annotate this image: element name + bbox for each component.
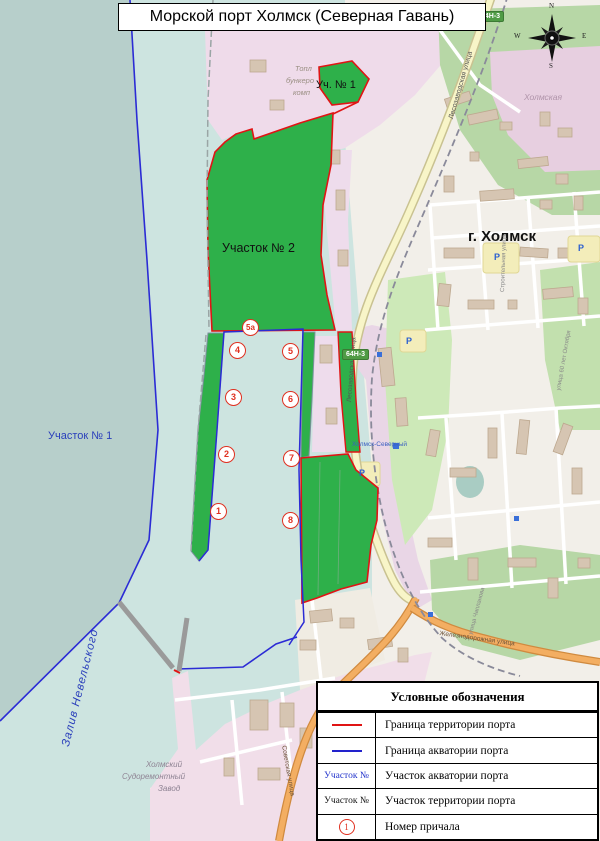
legend-row-text: Участок акватории порта	[376, 764, 597, 788]
legend-row-territory-border: Граница территории порта	[318, 712, 597, 737]
compass-n-label: N	[549, 2, 554, 10]
legend-row-aquatory-border: Граница акватории порта	[318, 737, 597, 762]
legend-row-text: Номер причала	[376, 815, 597, 839]
station-label: Холмск-Северный	[352, 441, 407, 448]
parking-icon: P	[494, 252, 500, 262]
territory-area2-polygon	[207, 113, 335, 331]
fuel-company-label: бункеро	[286, 76, 314, 85]
blue-line-symbol	[332, 750, 362, 752]
red-line-symbol	[332, 724, 362, 726]
parking-icon: P	[406, 336, 412, 346]
territory-area2-label: Участок № 2	[222, 241, 295, 255]
legend-row-text: Участок территории порта	[376, 789, 597, 813]
water-area1-label: Участок № 1	[48, 430, 112, 442]
berth-marker: 8	[282, 512, 299, 529]
territory-area-symbol: Участок №	[324, 796, 369, 806]
shipyard-label: Завод	[158, 784, 180, 793]
berth-circle-symbol: 1	[339, 819, 355, 835]
port-map: Морской порт Холмск (Северная Гавань) г.…	[0, 0, 600, 841]
berth-marker: 5а	[242, 319, 259, 336]
berth-marker: 3	[225, 389, 242, 406]
berth-marker: 4	[229, 342, 246, 359]
bus-stop-icon	[428, 612, 433, 617]
parking-icon: P	[578, 243, 584, 253]
compass-e-label: E	[582, 32, 586, 40]
shipyard-label: Судоремонтный	[122, 772, 185, 781]
fuel-company-label: Топл	[295, 64, 312, 73]
district-label: Холмская	[524, 92, 562, 102]
parking-icon: P	[359, 468, 365, 478]
legend: Условные обозначения Граница территории …	[316, 681, 599, 841]
bus-stop-icon	[514, 516, 519, 521]
berth-marker: 6	[282, 391, 299, 408]
berth-marker: 7	[283, 450, 300, 467]
shipyard-label: Холмский	[146, 760, 182, 769]
legend-row-berth-number: 1 Номер причала	[318, 814, 597, 839]
fuel-company-label: комп	[293, 88, 310, 97]
legend-row-text: Граница территории порта	[376, 713, 597, 737]
legend-title: Условные обозначения	[318, 683, 597, 712]
aquatory-area-symbol: Участок №	[324, 771, 369, 781]
legend-row-territory-area: Участок № Участок территории порта	[318, 788, 597, 813]
bus-stop-icon	[377, 352, 382, 357]
territory-area1-label: Уч. № 1	[316, 79, 356, 91]
berth-marker: 2	[218, 446, 235, 463]
berth-marker: 5	[282, 343, 299, 360]
map-title: Морской порт Холмск (Северная Гавань)	[118, 3, 486, 31]
berth-marker: 1	[210, 503, 227, 520]
compass-s-label: S	[549, 62, 553, 70]
legend-row-aquatory-area: Участок № Участок акватории порта	[318, 763, 597, 788]
compass-w-label: W	[514, 32, 521, 40]
road-badge: 64Н-3	[342, 349, 369, 360]
legend-row-text: Граница акватории порта	[376, 738, 597, 762]
